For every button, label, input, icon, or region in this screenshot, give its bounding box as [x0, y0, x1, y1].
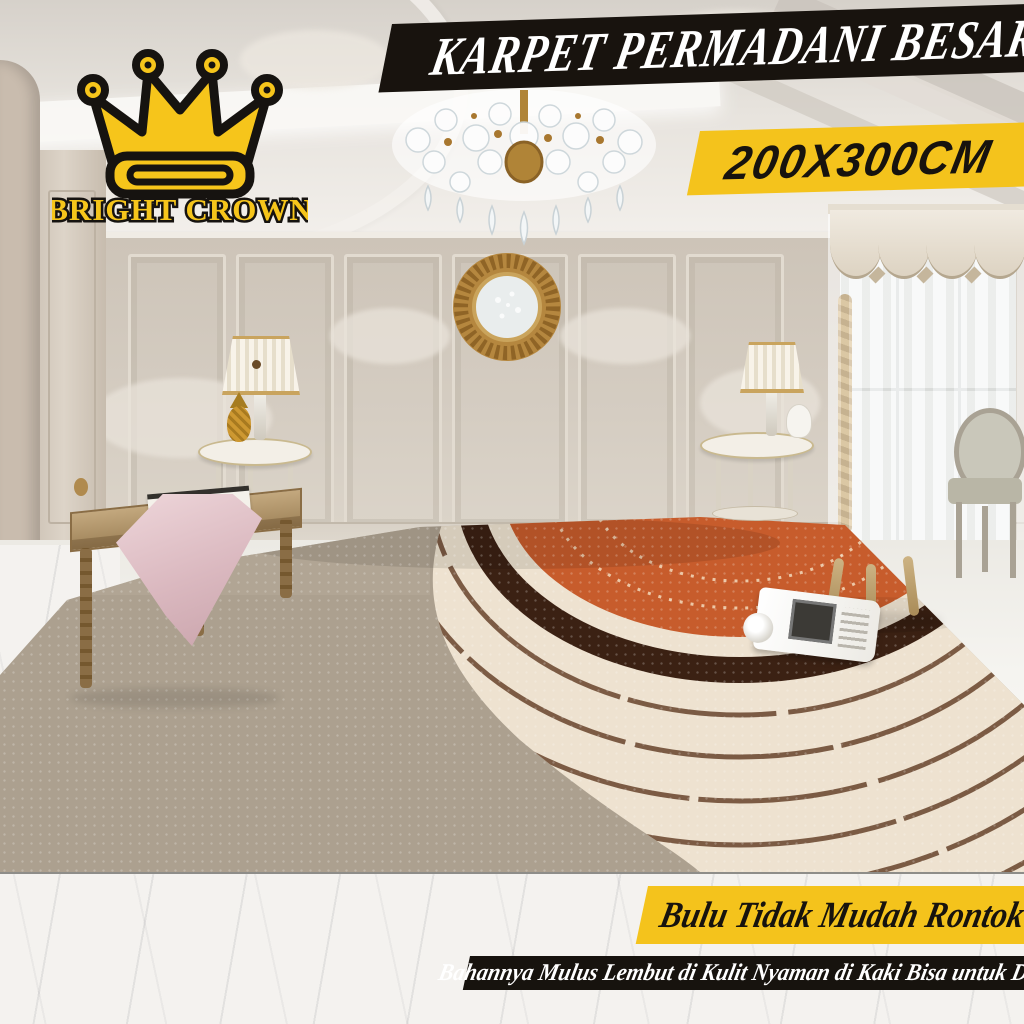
gray-chair-leg	[982, 506, 988, 572]
wall-relief-carving	[560, 308, 690, 364]
wall-panel	[578, 254, 676, 528]
size-text: 200X300CM	[721, 128, 997, 190]
valance-swag	[878, 210, 930, 279]
arch-doorway	[0, 60, 40, 560]
magazine-text-lines	[838, 607, 871, 650]
gray-chair-leg	[956, 502, 962, 578]
caption-text: Bahannya Mulus Lembut di Kulit Nyaman di…	[436, 960, 1024, 987]
wall-relief-carving	[330, 308, 450, 364]
bench-leg	[280, 518, 292, 598]
lampshade-floral-motif	[252, 360, 261, 369]
feature-badge: Bulu Tidak Mudah Rontok	[636, 886, 1024, 944]
bench-finial	[74, 478, 88, 496]
gray-chair-seat	[948, 478, 1022, 504]
brand-logo: BRIGHT CROWN	[52, 34, 308, 226]
feature-text: Bulu Tidak Mudah Rontok	[656, 894, 1024, 937]
magazine-photo	[788, 599, 837, 644]
crystal-chandelier-icon	[388, 90, 660, 270]
size-badge: 200X300CM	[687, 121, 1024, 195]
valance-swag	[926, 210, 978, 279]
crown-icon	[81, 53, 279, 194]
product-ad-image: BRIGHT CROWN KARPET PERMADANI BESAR 200X…	[0, 0, 1024, 1024]
sunburst-mirror-icon	[450, 250, 564, 364]
window	[828, 204, 1024, 560]
brand-name: BRIGHT CROWN	[52, 192, 308, 226]
gray-chair-leg	[1010, 502, 1016, 578]
wall-panel	[344, 254, 442, 528]
white-jug	[786, 404, 812, 438]
bench-leg	[80, 548, 92, 688]
caption-banner: Bahannya Mulus Lembut di Kulit Nyaman di…	[463, 956, 1024, 990]
valance-swag	[830, 210, 882, 279]
valance-swag	[974, 210, 1024, 279]
